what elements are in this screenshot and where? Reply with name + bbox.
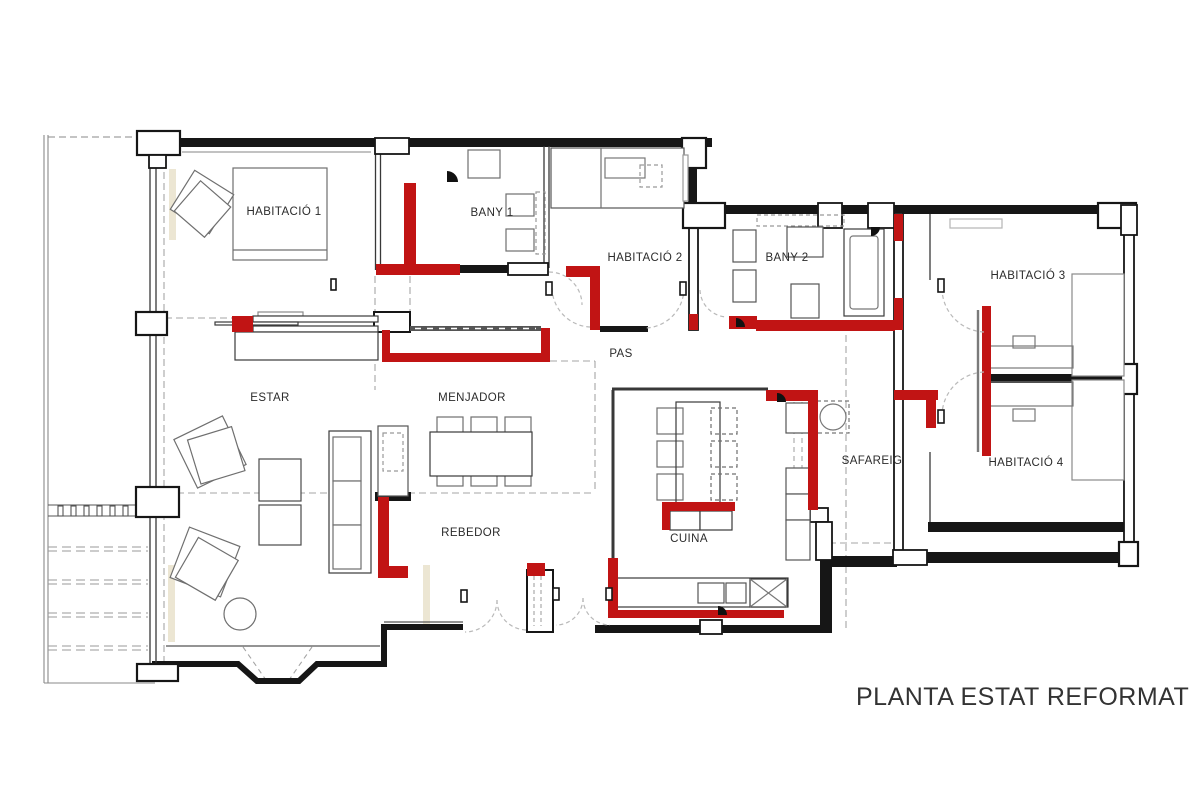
terrace-outline: [44, 135, 155, 683]
room-label-estar: ESTAR: [250, 392, 290, 404]
room-label-bany2: BANY 2: [765, 252, 808, 264]
room-label-cuina: CUINA: [670, 533, 708, 545]
floor-plan-canvas: HABITACIÓ 1 BANY 1 HABITACIÓ 2 BANY 2 HA…: [0, 0, 1200, 800]
room-label-rebedor: REBEDOR: [441, 527, 501, 539]
room-label-bany1: BANY 1: [470, 207, 513, 219]
bay-window-wall: [152, 627, 463, 681]
floor-plan-svg: HABITACIÓ 1 BANY 1 HABITACIÓ 2 BANY 2 HA…: [0, 0, 1200, 800]
room-label-habitacio2: HABITACIÓ 2: [607, 251, 682, 264]
room-label-safareig: SAFAREIG: [842, 455, 903, 467]
room-label-pas: PAS: [609, 348, 632, 360]
room-label-habitacio4: HABITACIÓ 4: [988, 456, 1063, 469]
room-label-habitacio3: HABITACIÓ 3: [990, 269, 1065, 282]
room-label-habitacio1: HABITACIÓ 1: [246, 205, 321, 218]
room-label-menjador: MENJADOR: [438, 392, 506, 404]
plan-title: PLANTA ESTAT REFORMAT: [856, 683, 1189, 711]
